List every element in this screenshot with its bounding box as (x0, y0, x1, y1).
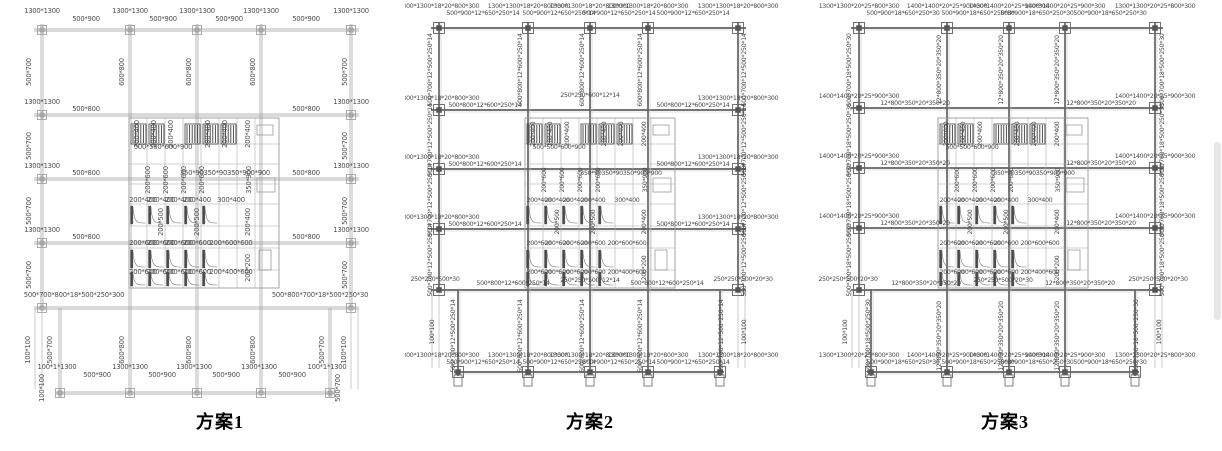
svg-text:350*900: 350*900 (245, 166, 253, 194)
svg-text:500*700: 500*700 (334, 374, 342, 402)
svg-text:600*800: 600*800 (185, 336, 193, 364)
svg-text:600*800: 600*800 (185, 58, 193, 86)
svg-text:200*600: 200*600 (144, 166, 152, 194)
svg-text:200*600: 200*600 (972, 167, 979, 192)
svg-text:500*700: 500*700 (341, 197, 349, 225)
svg-text:500*800*12*600*250*14: 500*800*12*600*250*14 (448, 161, 522, 168)
svg-text:200*600: 200*600 (990, 167, 997, 192)
svg-text:250*250*500*20*30: 250*250*500*20*30 (1128, 276, 1188, 283)
svg-text:200*400: 200*400 (601, 121, 608, 146)
svg-text:1300*1300*18*20*800*300: 1300*1300*18*20*800*300 (405, 95, 480, 102)
svg-text:250*250*500*20*30: 250*250*500*20*30 (973, 277, 1033, 284)
svg-text:200*600*600: 200*600*600 (1021, 240, 1060, 247)
svg-text:500*700*800*18*500*250*300: 500*700*800*18*500*250*300 (24, 291, 124, 299)
svg-text:500*700*12*500*250*14: 500*700*12*500*250*14 (427, 223, 434, 297)
svg-text:300*400: 300*400 (217, 196, 245, 204)
svg-text:250*250*500*20*30: 250*250*500*20*30 (713, 276, 773, 283)
svg-text:1300*1300: 1300*1300 (24, 7, 60, 15)
svg-text:1400*1400*20*25*900*300: 1400*1400*20*25*900*300 (819, 213, 900, 220)
svg-text:200*200: 200*200 (1054, 255, 1061, 280)
svg-text:1300*1300*18*20*800*300: 1300*1300*18*20*800*300 (405, 214, 480, 221)
svg-text:12*800*350*20*350*20: 12*800*350*20*350*20 (1045, 280, 1115, 287)
svg-text:1300*1300*18*20*800*300: 1300*1300*18*20*800*300 (608, 352, 689, 359)
svg-text:200*400: 200*400 (183, 196, 211, 204)
svg-text:100*100: 100*100 (38, 374, 46, 402)
svg-text:500*700: 500*700 (25, 132, 33, 160)
svg-text:1400*1400*20*25*900*300: 1400*1400*20*25*900*300 (819, 153, 900, 160)
svg-text:200*400: 200*400 (960, 121, 967, 146)
svg-text:500*800: 500*800 (72, 233, 100, 241)
svg-text:12*800*350*20*350*20: 12*800*350*20*350*20 (1066, 160, 1136, 167)
svg-text:1300*1300: 1300*1300 (112, 363, 148, 371)
svg-text:500*900*18*650*250*30: 500*900*18*650*250*30 (866, 10, 940, 17)
svg-text:500*800*12*600*250*14: 500*800*12*600*250*14 (476, 280, 550, 287)
svg-text:12*800*350*20*350*20: 12*800*350*20*350*20 (1066, 100, 1136, 107)
svg-text:500*900*18*650*250*30: 500*900*18*650*250*30 (1073, 10, 1147, 17)
svg-text:500*700: 500*700 (318, 336, 326, 364)
plan-2-panel: 200*400200*400200*400200*400200*400200*4… (405, 0, 809, 451)
svg-text:250*250*500*30: 250*250*500*30 (410, 276, 459, 283)
svg-text:100*100: 100*100 (340, 336, 348, 364)
svg-text:1300*1300: 1300*1300 (24, 98, 60, 106)
svg-text:12*800*350*20*350*20: 12*800*350*20*350*20 (880, 160, 950, 167)
svg-text:500*900*12*650*250*14: 500*900*12*650*250*14 (446, 359, 520, 366)
svg-text:200*600: 200*600 (183, 239, 211, 247)
svg-text:200*500: 200*500 (554, 209, 561, 234)
svg-text:1300*1300*20*25*800*300: 1300*1300*20*25*800*300 (819, 352, 900, 359)
svg-text:200*500: 200*500 (193, 208, 201, 236)
svg-text:200*400: 200*400 (204, 120, 212, 148)
svg-text:1300*1300*20*25*800*300: 1300*1300*20*25*800*300 (1115, 3, 1196, 10)
svg-text:200*400: 200*400 (618, 121, 625, 146)
svg-text:200*400: 200*400 (641, 209, 648, 234)
svg-text:100*100: 100*100 (1156, 319, 1163, 344)
plan-2-drawing: 200*400200*400200*400200*400200*400200*4… (405, 0, 809, 410)
svg-text:1300*1300*18*20*800*300: 1300*1300*18*20*800*300 (698, 95, 779, 102)
svg-text:1300*1300*18*20*800*300: 1300*1300*18*20*800*300 (698, 154, 779, 161)
svg-text:600*800: 600*800 (249, 336, 257, 364)
svg-text:500*800: 500*800 (72, 169, 100, 177)
svg-text:200*400: 200*400 (641, 121, 648, 146)
svg-text:100*100: 100*100 (741, 319, 748, 344)
svg-text:200*600: 200*600 (183, 268, 211, 276)
svg-text:1300*1300*18*20*800*300: 1300*1300*18*20*800*300 (698, 214, 779, 221)
svg-text:500*700*18*500*250*30: 500*700*18*500*250*30 (1159, 223, 1166, 297)
svg-text:500*700*12*500*250*14: 500*700*12*500*250*14 (741, 223, 748, 297)
plan-3-drawing: 200*400200*400200*400200*400200*400200*4… (818, 0, 1222, 410)
plan-1-panel: 200*400200*400200*400200*400200*400200*4… (2, 0, 406, 451)
svg-text:500*900*18*650*250*30: 500*900*18*650*250*30 (1000, 359, 1074, 366)
svg-text:500*700: 500*700 (25, 197, 33, 225)
svg-text:500*900*12*650*250*14: 500*900*12*650*250*14 (446, 10, 520, 17)
svg-text:500*800*12*600*250*14: 500*800*12*600*250*14 (630, 280, 704, 287)
svg-text:1300*1300*20*25*800*300: 1300*1300*20*25*800*300 (1115, 352, 1196, 359)
svg-text:300*400: 300*400 (1028, 197, 1053, 204)
svg-text:200*400: 200*400 (994, 197, 1019, 204)
svg-text:200*600: 200*600 (162, 166, 170, 194)
svg-text:200*400: 200*400 (581, 197, 606, 204)
svg-text:200*600: 200*600 (581, 269, 606, 276)
svg-text:500*500*600*900: 500*500*600*900 (946, 144, 999, 151)
svg-text:1300*1300: 1300*1300 (241, 363, 277, 371)
svg-text:500*900*12*650*250*14: 500*900*12*650*250*14 (582, 359, 656, 366)
svg-text:300*400: 300*400 (615, 197, 640, 204)
svg-text:200*600*600: 200*600*600 (608, 240, 647, 247)
svg-text:200*400: 200*400 (547, 121, 554, 146)
svg-text:500*900: 500*900 (148, 371, 176, 379)
svg-text:500*700: 500*700 (341, 261, 349, 289)
svg-text:1300*1300: 1300*1300 (179, 7, 215, 15)
svg-text:500*900*12*650*250*14: 500*900*12*650*250*14 (656, 10, 730, 17)
svg-text:600*800: 600*800 (118, 58, 126, 86)
plan-2-caption: 方案2 (490, 408, 690, 434)
svg-text:500*900*12*650*250*14: 500*900*12*650*250*14 (656, 359, 730, 366)
right-edge-scrollbar-strip (1214, 142, 1221, 320)
svg-text:500*700: 500*700 (341, 132, 349, 160)
svg-text:12*800*350*20*350*20: 12*800*350*20*350*20 (936, 35, 943, 105)
svg-text:200*400: 200*400 (221, 120, 229, 148)
svg-text:12*800*350*20*350*20: 12*800*350*20*350*20 (880, 220, 950, 227)
svg-text:200*400: 200*400 (943, 121, 950, 146)
svg-text:12*800*350*20*350*20: 12*800*350*20*350*20 (998, 35, 1005, 105)
svg-text:600*800: 600*800 (249, 58, 257, 86)
svg-text:1300*1300*18*20*800*300: 1300*1300*18*20*800*300 (698, 352, 779, 359)
svg-text:200*600: 200*600 (954, 167, 961, 192)
svg-text:200*600*600: 200*600*600 (210, 239, 253, 247)
svg-text:1300*1300*18*20*800*300: 1300*1300*18*20*800*300 (405, 3, 480, 10)
plan-3-panel: 200*400200*400200*400200*400200*400200*4… (818, 0, 1222, 451)
svg-text:500*900*18*650*250*30: 500*900*18*650*250*30 (1073, 359, 1147, 366)
svg-text:350*900: 350*900 (642, 167, 649, 192)
svg-text:1300*1300: 1300*1300 (24, 226, 60, 234)
svg-text:500*800: 500*800 (72, 105, 100, 113)
svg-text:200*400: 200*400 (977, 121, 984, 146)
svg-text:1300*1300*18*20*800*300: 1300*1300*18*20*800*300 (608, 3, 689, 10)
svg-text:1300*1300*18*20*800*300: 1300*1300*18*20*800*300 (405, 154, 480, 161)
svg-text:500*700: 500*700 (46, 336, 54, 364)
svg-text:600*800*12*600*250*14: 600*800*12*600*250*14 (637, 33, 644, 107)
svg-text:500*500*600*900: 500*500*600*900 (533, 144, 586, 151)
svg-text:250*250*500*20*30: 250*250*500*20*30 (818, 276, 878, 283)
svg-text:1400*1400*20*25*900*300: 1400*1400*20*25*900*300 (1115, 213, 1196, 220)
svg-text:200*600: 200*600 (577, 167, 584, 192)
svg-text:500*900: 500*900 (83, 371, 111, 379)
svg-text:200*500: 200*500 (967, 209, 974, 234)
svg-text:200*600: 200*600 (541, 167, 548, 192)
plan-1-caption: 方案1 (120, 408, 320, 434)
plan-1-drawing: 200*400200*400200*400200*400200*400200*4… (2, 0, 406, 410)
svg-text:500*800*12*600*250*14: 500*800*12*600*250*14 (448, 102, 522, 109)
svg-text:600*800: 600*800 (118, 336, 126, 364)
svg-text:500*800*12*600*250*14: 500*800*12*600*250*14 (448, 221, 522, 228)
svg-text:1400*1400*20*25*900*300: 1400*1400*20*25*900*300 (1115, 93, 1196, 100)
svg-text:500*900: 500*900 (212, 371, 240, 379)
svg-text:500*900: 500*900 (149, 15, 177, 23)
svg-text:500*800*12*600*250*14: 500*800*12*600*250*14 (656, 221, 730, 228)
svg-text:12*800*350*20*350*20: 12*800*350*20*350*20 (891, 280, 961, 287)
svg-text:500*900: 500*900 (72, 15, 100, 23)
svg-text:200*600: 200*600 (994, 240, 1019, 247)
svg-text:500*900: 500*900 (278, 371, 306, 379)
plan-3-caption: 方案3 (905, 408, 1105, 434)
svg-text:350*90350*90350*900*900: 350*90350*90350*900*900 (180, 169, 270, 177)
svg-text:500*700: 500*700 (341, 58, 349, 86)
svg-text:200*400: 200*400 (1054, 209, 1061, 234)
svg-text:500*900*18*650*250*30: 500*900*18*650*250*30 (1000, 10, 1074, 17)
svg-text:250*250*600*12*14: 250*250*600*12*14 (560, 92, 620, 99)
svg-text:200*600: 200*600 (1008, 167, 1015, 192)
svg-text:200*500: 200*500 (157, 208, 165, 236)
svg-text:600*800*12*600*250*14: 600*800*12*600*250*14 (517, 33, 524, 107)
svg-text:500*900*12*650*250*14: 500*900*12*650*250*14 (582, 10, 656, 17)
svg-text:100*1*1300: 100*1*1300 (38, 363, 77, 371)
svg-text:200*400: 200*400 (244, 120, 252, 148)
svg-text:500*700: 500*700 (25, 58, 33, 86)
svg-text:1300*1300: 1300*1300 (333, 162, 369, 170)
svg-text:200*400: 200*400 (1031, 121, 1038, 146)
three-scheme-structural-plans: 200*400200*400200*400200*400200*400200*4… (0, 0, 1222, 451)
svg-text:1300*1300*18*20*800*300: 1300*1300*18*20*800*300 (698, 3, 779, 10)
svg-text:500*800: 500*800 (292, 169, 320, 177)
svg-text:1300*1300: 1300*1300 (112, 7, 148, 15)
svg-text:350*90350*90350*900*900: 350*90350*90350*900*900 (580, 170, 662, 177)
svg-text:500*800*12*600*250*14: 500*800*12*600*250*14 (656, 161, 730, 168)
svg-text:500*700: 500*700 (25, 261, 33, 289)
svg-text:1300*1300: 1300*1300 (333, 7, 369, 15)
svg-text:200*200: 200*200 (641, 255, 648, 280)
svg-text:100*100: 100*100 (842, 319, 849, 344)
svg-text:500*900: 500*900 (215, 15, 243, 23)
svg-text:200*400: 200*400 (1014, 121, 1021, 146)
svg-text:350*90350*90350*900*900: 350*90350*90350*900*900 (993, 170, 1075, 177)
svg-text:500*800: 500*800 (292, 233, 320, 241)
svg-text:250*250*500*12*14: 250*250*500*12*14 (560, 277, 620, 284)
svg-text:200*500: 200*500 (590, 209, 597, 234)
svg-text:1300*1300: 1300*1300 (333, 226, 369, 234)
svg-text:12*800*350*20*350*20: 12*800*350*20*350*20 (1054, 35, 1061, 105)
svg-text:500*500*600*900: 500*500*600*900 (134, 143, 192, 151)
svg-text:500*700*18*500*250*30: 500*700*18*500*250*30 (846, 223, 853, 297)
svg-text:100*1*1300: 100*1*1300 (308, 363, 347, 371)
svg-text:1300*1300: 1300*1300 (176, 363, 212, 371)
svg-text:1300*1300: 1300*1300 (333, 98, 369, 106)
svg-text:500*900*18*650*250*30: 500*900*18*650*250*30 (866, 359, 940, 366)
svg-text:200*600: 200*600 (595, 167, 602, 192)
svg-text:12*800*350*20*350*20: 12*800*350*20*350*20 (880, 100, 950, 107)
svg-text:12*800*350*20*350*20: 12*800*350*20*350*20 (1066, 220, 1136, 227)
svg-text:500*900: 500*900 (292, 15, 320, 23)
svg-text:200*500: 200*500 (1003, 209, 1010, 234)
svg-text:200*400: 200*400 (564, 121, 571, 146)
svg-text:1400*1400*20*25*900*300: 1400*1400*20*25*900*300 (1115, 153, 1196, 160)
svg-text:100*100: 100*100 (24, 336, 32, 364)
svg-text:100*100: 100*100 (429, 319, 436, 344)
svg-text:200*600: 200*600 (994, 269, 1019, 276)
svg-text:1400*1400*20*25*900*300: 1400*1400*20*25*900*300 (1025, 352, 1106, 359)
svg-text:200*600: 200*600 (581, 240, 606, 247)
svg-text:500*800: 500*800 (292, 105, 320, 113)
svg-text:500*800*700*18*500*250*30: 500*800*700*18*500*250*30 (272, 291, 368, 299)
svg-text:1400*1400*20*25*900*300: 1400*1400*20*25*900*300 (819, 93, 900, 100)
svg-text:1300*1300*20*25*800*300: 1300*1300*20*25*800*300 (819, 3, 900, 10)
svg-text:1300*1300*18*20*800*300: 1300*1300*18*20*800*300 (405, 352, 480, 359)
svg-text:1300*1300: 1300*1300 (243, 7, 279, 15)
svg-text:1400*1400*20*25*900*300: 1400*1400*20*25*900*300 (1025, 3, 1106, 10)
svg-text:350*900: 350*900 (1055, 167, 1062, 192)
svg-text:500*800*12*600*250*14: 500*800*12*600*250*14 (656, 102, 730, 109)
svg-text:200*400: 200*400 (1054, 121, 1061, 146)
svg-text:200*400: 200*400 (244, 208, 252, 236)
svg-text:200*600: 200*600 (198, 166, 206, 194)
svg-text:200*600: 200*600 (559, 167, 566, 192)
svg-text:200*400: 200*400 (530, 121, 537, 146)
svg-text:1300*1300: 1300*1300 (24, 162, 60, 170)
svg-text:200*200: 200*200 (244, 254, 252, 282)
svg-text:200*600: 200*600 (180, 166, 188, 194)
